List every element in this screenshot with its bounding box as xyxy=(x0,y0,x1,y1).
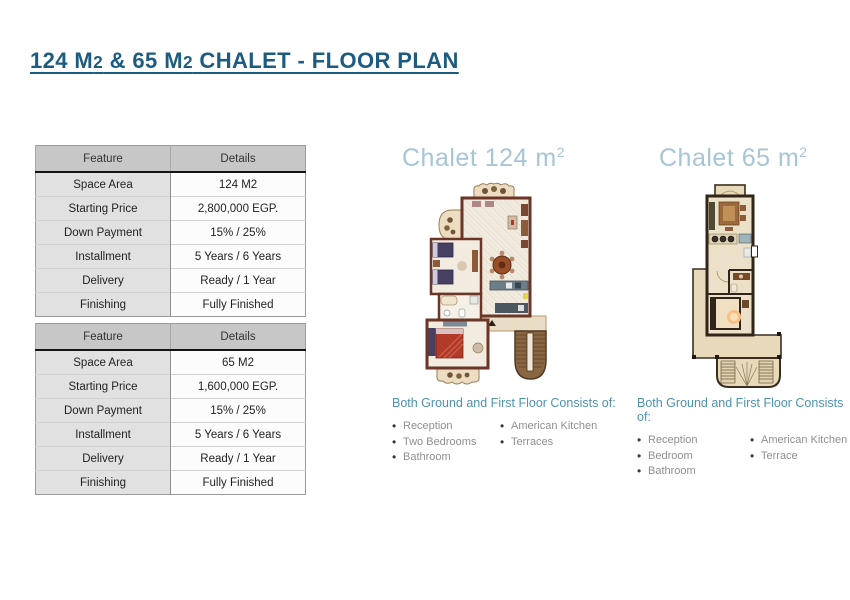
table-row: Installment5 Years / 6 Years xyxy=(36,423,306,447)
table-header-row: Feature Details xyxy=(36,324,306,351)
list-item: Reception xyxy=(392,419,500,435)
feature-cell: Down Payment xyxy=(36,221,171,245)
list-item: Terraces xyxy=(500,435,597,451)
feature-cell: Delivery xyxy=(36,269,171,293)
list-item: Two Bedrooms xyxy=(392,435,500,451)
list-item: American Kitchen xyxy=(500,419,597,435)
title-text: 2 xyxy=(93,52,103,72)
table-header-row: Feature Details xyxy=(36,146,306,173)
table-row: DeliveryReady / 1 Year xyxy=(36,269,306,293)
table-row: Starting Price2,800,000 EGP. xyxy=(36,197,306,221)
chalet-124-consists: Both Ground and First Floor Consists of:… xyxy=(392,396,617,466)
details-cell: Ready / 1 Year xyxy=(171,447,306,471)
feature-cell: Space Area xyxy=(36,172,171,197)
heading-text: Chalet 124 m xyxy=(402,144,557,172)
details-cell: 5 Years / 6 Years xyxy=(171,423,306,447)
chalet-124-spec-table: Feature Details Space Area124 M2 Startin… xyxy=(35,145,306,317)
feature-cell: Space Area xyxy=(36,350,171,375)
title-text: CHALET - FLOOR PLAN xyxy=(193,48,459,73)
feature-header: Feature xyxy=(36,146,171,173)
table-row: DeliveryReady / 1 Year xyxy=(36,447,306,471)
title-text: 2 xyxy=(183,52,193,72)
title-text: 124 M xyxy=(30,48,93,73)
feature-cell: Finishing xyxy=(36,471,171,495)
table-row: Starting Price1,600,000 EGP. xyxy=(36,375,306,399)
page-title: 124 M2 & 65 M2 CHALET - FLOOR PLAN xyxy=(30,48,459,74)
consists-column-2: American Kitchen Terrace xyxy=(750,433,847,480)
floor-plan-124-image xyxy=(422,182,548,390)
table-row: Space Area65 M2 xyxy=(36,350,306,375)
table-row: Space Area124 M2 xyxy=(36,172,306,197)
consists-column-1: Reception Bedroom Bathroom xyxy=(637,433,750,480)
list-item: Terrace xyxy=(750,449,847,465)
details-cell: Fully Finished xyxy=(171,293,306,317)
table-row: Down Payment15% / 25% xyxy=(36,399,306,423)
heading-sup: 2 xyxy=(799,144,807,160)
table-row: Installment5 Years / 6 Years xyxy=(36,245,306,269)
table-row: Down Payment15% / 25% xyxy=(36,221,306,245)
list-item: American Kitchen xyxy=(750,433,847,449)
chalet-65-consists: Both Ground and First Floor Consists of:… xyxy=(637,396,850,480)
consists-title: Both Ground and First Floor Consists of: xyxy=(392,396,617,410)
list-item: Bathroom xyxy=(637,464,750,480)
details-cell: Fully Finished xyxy=(171,471,306,495)
chalet-65-spec-table: Feature Details Space Area65 M2 Starting… xyxy=(35,323,306,495)
details-cell: 65 M2 xyxy=(171,350,306,375)
feature-cell: Installment xyxy=(36,245,171,269)
feature-cell: Starting Price xyxy=(36,197,171,221)
table-row: FinishingFully Finished xyxy=(36,293,306,317)
feature-cell: Installment xyxy=(36,423,171,447)
details-cell: 124 M2 xyxy=(171,172,306,197)
details-header: Details xyxy=(171,146,306,173)
feature-cell: Finishing xyxy=(36,293,171,317)
feature-cell: Delivery xyxy=(36,447,171,471)
list-item: Bedroom xyxy=(637,449,750,465)
chalet-65-heading: Chalet 65 m2 xyxy=(659,144,808,173)
feature-cell: Starting Price xyxy=(36,375,171,399)
details-cell: 15% / 25% xyxy=(171,399,306,423)
consists-column-1: Reception Two Bedrooms Bathroom xyxy=(392,419,500,466)
heading-text: Chalet 65 m xyxy=(659,144,799,172)
details-cell: 15% / 25% xyxy=(171,221,306,245)
table-row: FinishingFully Finished xyxy=(36,471,306,495)
list-item: Bathroom xyxy=(392,450,500,466)
feature-cell: Down Payment xyxy=(36,399,171,423)
list-item: Reception xyxy=(637,433,750,449)
feature-header: Feature xyxy=(36,324,171,351)
details-cell: 2,800,000 EGP. xyxy=(171,197,306,221)
chalet-124-heading: Chalet 124 m2 xyxy=(402,144,565,173)
details-cell: Ready / 1 Year xyxy=(171,269,306,293)
heading-sup: 2 xyxy=(557,144,565,160)
details-cell: 1,600,000 EGP. xyxy=(171,375,306,399)
details-header: Details xyxy=(171,324,306,351)
consists-column-2: American Kitchen Terraces xyxy=(500,419,597,466)
consists-title: Both Ground and First Floor Consists of: xyxy=(637,396,850,424)
floor-plan-65-image xyxy=(692,182,785,390)
title-text: & 65 M xyxy=(103,48,183,73)
details-cell: 5 Years / 6 Years xyxy=(171,245,306,269)
page: { "title": { "part1": "124 M", "part2": … xyxy=(0,0,850,600)
